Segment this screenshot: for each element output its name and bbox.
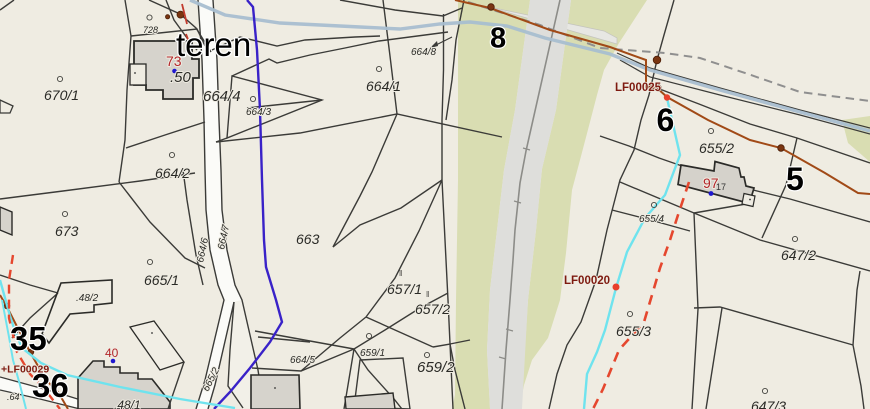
svg-text:664/2: 664/2 <box>155 165 190 181</box>
svg-text:36: 36 <box>32 367 69 404</box>
svg-text:655/4: 655/4 <box>639 214 664 225</box>
svg-text:‖: ‖ <box>399 269 402 278</box>
svg-text:LF00020: LF00020 <box>564 275 610 287</box>
svg-text:‖: ‖ <box>426 290 429 299</box>
svg-text:663: 663 <box>296 231 320 247</box>
svg-text:6: 6 <box>657 102 675 138</box>
svg-text:.50: .50 <box>170 69 192 86</box>
svg-text:657/1: 657/1 <box>387 281 422 297</box>
svg-text:664/8: 664/8 <box>411 47 436 58</box>
svg-text:664/5: 664/5 <box>290 355 315 366</box>
svg-text:657/2: 657/2 <box>415 301 450 317</box>
svg-text:673: 673 <box>55 223 79 239</box>
svg-text:35: 35 <box>10 320 47 357</box>
svg-text:665/1: 665/1 <box>144 272 179 288</box>
svg-text:655/3: 655/3 <box>616 323 651 339</box>
svg-text:659/2: 659/2 <box>417 359 455 376</box>
svg-text:670/1: 670/1 <box>44 87 79 103</box>
svg-text:8: 8 <box>490 23 506 55</box>
svg-text:664/1: 664/1 <box>366 78 401 94</box>
svg-text:.64: .64 <box>7 392 20 402</box>
svg-text:5: 5 <box>786 161 804 197</box>
svg-text:664/3: 664/3 <box>246 107 271 118</box>
svg-text:teren: teren <box>176 26 251 63</box>
svg-text:LF00025: LF00025 <box>615 82 662 94</box>
svg-text:728: 728 <box>143 25 158 35</box>
svg-text:659/1: 659/1 <box>360 348 385 359</box>
svg-text:.48/2: .48/2 <box>76 293 99 304</box>
svg-text:655/2: 655/2 <box>699 140 734 156</box>
svg-text:.48/1: .48/1 <box>114 398 141 409</box>
svg-text:647/2: 647/2 <box>781 247 816 263</box>
svg-text:17: 17 <box>716 182 726 192</box>
svg-text:40: 40 <box>105 346 119 360</box>
svg-text:664/4: 664/4 <box>203 88 241 105</box>
svg-text:647/3: 647/3 <box>751 398 786 409</box>
